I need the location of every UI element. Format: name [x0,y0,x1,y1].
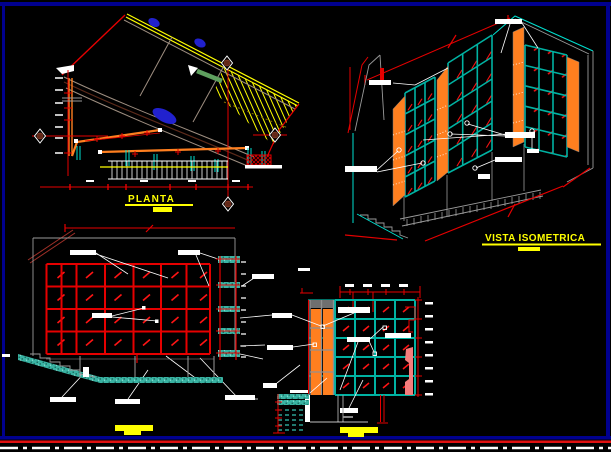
side-right-dim [415,297,433,397]
iso-base-red-edge [345,168,590,241]
cad-drawing-canvas: PLANTA [0,0,611,452]
plan-balustrade [100,161,228,179]
side-orange-panels [309,300,334,395]
isometric-title-underline [482,244,601,246]
iso-orange-panel [567,57,579,152]
elev-section-strip [216,256,246,360]
front-elevation-view [2,224,274,435]
plan-scale-blob [153,207,172,212]
isometric-view: VISTA ISOMETRICA [345,15,601,251]
iso-stairs-edge [357,214,403,239]
border-left [2,2,5,438]
isometric-title: VISTA ISOMETRICA [485,233,585,244]
iso-tower-gray [355,55,384,131]
plan-joint-marks [94,130,221,157]
plan-title-underline [125,204,193,206]
plan-arrow-head [188,65,198,76]
isometric-scale-blob [518,247,540,251]
axis-marker [223,197,234,211]
plan-stair-hatch [214,68,297,145]
baseline-red [0,441,611,444]
side-elevation-view [263,268,433,437]
plan-left-dim-ticks [55,78,63,153]
plan-glazing-edge [126,14,299,106]
elevation-title-blob [115,425,153,431]
plan-title: PLANTA [128,194,175,205]
plan-corner-detail [56,65,74,74]
side-top-label [298,268,310,271]
plan-slab-edge [245,165,282,169]
border-top [0,2,611,6]
elev-ground [18,354,223,383]
iso-tower-red [348,57,368,133]
iso-orange-panel [393,96,405,206]
border-right [606,2,610,438]
iso-curtainwall-middle [437,35,492,181]
plan-hatched-pier [247,155,271,165]
border-bottom [0,436,611,440]
axis-marker [35,129,46,143]
iso-tower-panel [380,68,384,81]
plan-column-blob [147,16,161,29]
elev-roof-slope [28,230,75,263]
iso-orange-panel [437,66,448,181]
section-scale-blob [348,433,364,437]
side-top-tick [300,288,313,293]
side-stair-section [273,394,309,433]
plan-column-blob [193,37,207,50]
elevation-scale-blob [124,431,141,435]
cad-viewport: PLANTA [0,0,611,452]
iso-orange-panel [513,27,524,147]
section-title-blob [340,427,378,433]
iso-curtainwall-left [393,77,435,206]
iso-base-band [400,190,543,226]
plan-view: PLANTA [32,14,299,212]
plan-glazing-inner [124,20,295,109]
